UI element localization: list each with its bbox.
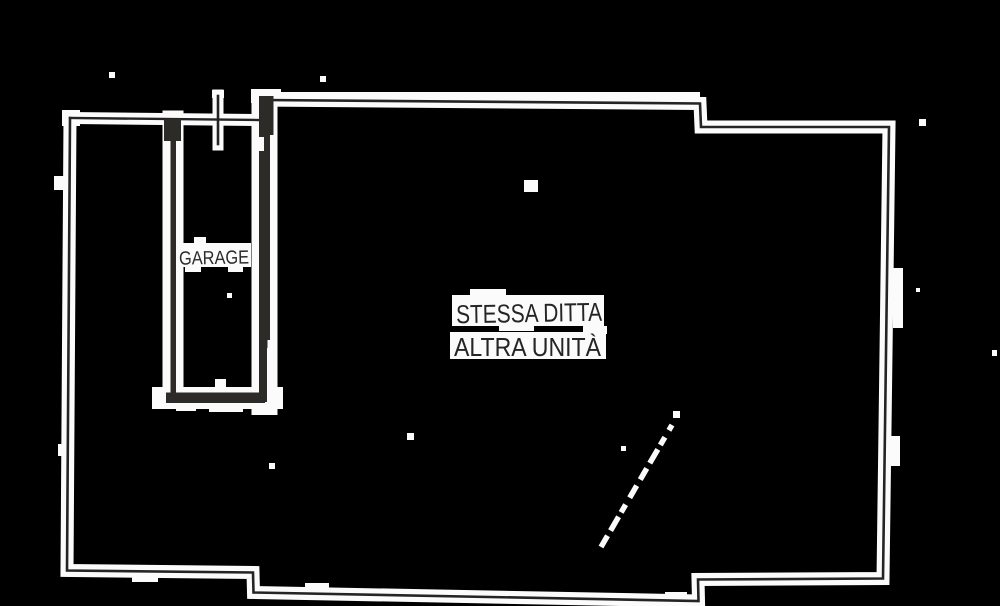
svg-text:ALTRA UNITÀ: ALTRA UNITÀ bbox=[454, 332, 602, 362]
svg-text:GARAGE: GARAGE bbox=[179, 247, 249, 269]
svg-text:STESSA DITTA: STESSA DITTA bbox=[456, 297, 603, 330]
